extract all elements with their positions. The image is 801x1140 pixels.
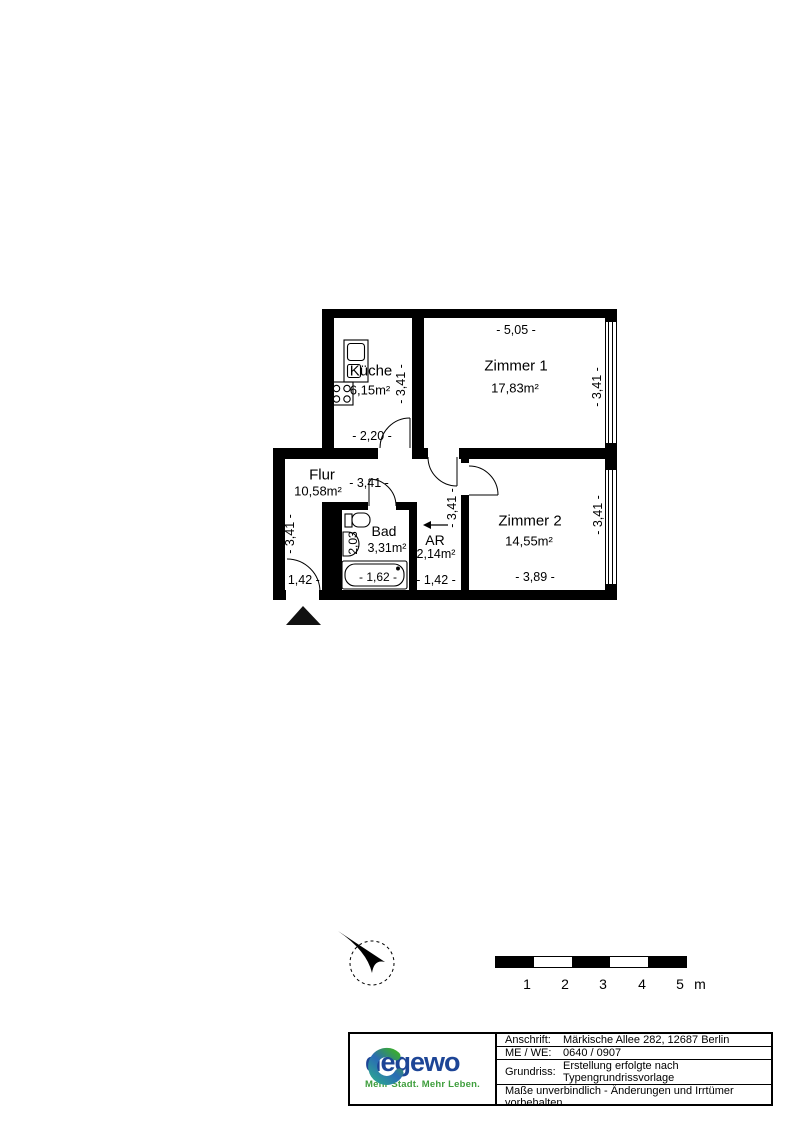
dim-zimmer2-width: - 3,89 - (515, 571, 555, 584)
room-label-ar: AR (425, 533, 444, 547)
north-arrow-icon (338, 931, 385, 973)
toilet-symbol (345, 513, 370, 527)
logo-cell: degewo Mehr Stadt. Mehr Leben. (350, 1034, 497, 1104)
entrance-marker (286, 606, 321, 625)
dim-kueche-depth: - 3,41 - (395, 364, 408, 404)
room-label-zimmer2: Zimmer 2 (498, 514, 561, 529)
info-label: Grundriss: (505, 1066, 563, 1078)
dim-flur-width: - 3,41 - (349, 477, 389, 490)
room-area-ar: 2,14m² (417, 548, 456, 561)
info-label: ME / WE: (505, 1047, 563, 1059)
room-area-zimmer1: 17,83m² (491, 382, 539, 395)
scale-bar (495, 956, 687, 968)
dim-entry-width: - 1,42 - (280, 574, 320, 587)
compass-icon (330, 920, 425, 1000)
info-value: Erstellung erfolgte nach Typengrundrissv… (563, 1060, 771, 1084)
room-area-bad: 3,31m² (368, 542, 407, 555)
room-area-kueche: 6,15m² (350, 384, 390, 397)
scale-segment (572, 957, 610, 967)
info-row-disclaimer: Maße unverbindlich - Änderungen und Irrt… (497, 1085, 771, 1109)
title-block-rows: Anschrift: Märkische Allee 282, 12687 Be… (497, 1034, 771, 1104)
room-area-flur: 10,58m² (294, 485, 342, 498)
scale-tick-5: 5 (676, 976, 684, 992)
degewo-swirl-icon (365, 1046, 407, 1092)
room-label-bad: Bad (372, 524, 397, 538)
info-row-anschrift: Anschrift: Märkische Allee 282, 12687 Be… (497, 1034, 771, 1047)
scale-segment (534, 957, 572, 967)
dim-lower-depth: - 3,41 - (446, 488, 459, 528)
info-row-grundriss: Grundriss: Erstellung erfolgte nach Type… (497, 1060, 771, 1085)
scale-unit: m (694, 976, 706, 992)
disclaimer-text: Maße unverbindlich - Änderungen und Irrt… (505, 1085, 771, 1109)
info-label: Anschrift: (505, 1034, 563, 1046)
dim-flur-depth: - 3,41 - (284, 514, 297, 554)
door-swing-zimmer2 (469, 466, 498, 495)
info-value: Märkische Allee 282, 12687 Berlin (563, 1034, 771, 1046)
dim-bathtub-length: - 1,62 - (359, 571, 397, 583)
dim-ar-width: - 1,42 - (416, 574, 456, 587)
dim-zimmer1-width: - 5,05 - (496, 324, 536, 337)
scale-tick-3: 3 (599, 976, 607, 992)
scale-tick-1: 1 (523, 976, 531, 992)
title-block: degewo Mehr Stadt. Mehr Leben. Anschrift… (348, 1032, 773, 1106)
room-area-zimmer2: 14,55m² (505, 535, 553, 548)
room-label-zimmer1: Zimmer 1 (484, 359, 547, 374)
room-label-kueche: Küche (350, 364, 393, 379)
info-row-me-we: ME / WE: 0640 / 0907 (497, 1047, 771, 1060)
door-swing-zimmer1 (428, 457, 457, 486)
room-label-flur: Flur (309, 468, 335, 483)
scale-tick-4: 4 (638, 976, 646, 992)
dim-zimmer1-depth: - 3,41 - (591, 367, 604, 407)
degewo-logo: degewo Mehr Stadt. Mehr Leben. (365, 1049, 480, 1090)
info-value: 0640 / 0907 (563, 1047, 771, 1059)
dim-bad-depth: 2,03 (347, 531, 359, 554)
dim-kueche-width: - 2,20 - (352, 430, 392, 443)
scale-segment (648, 957, 686, 967)
floorplan-page: { "plan": { "rooms": [ {"name": "Küche",… (0, 0, 801, 1140)
scale-segment (496, 957, 534, 967)
scale-segment (610, 957, 648, 967)
scale-tick-2: 2 (561, 976, 569, 992)
dim-zimmer2-depth: - 3,41 - (592, 495, 605, 535)
